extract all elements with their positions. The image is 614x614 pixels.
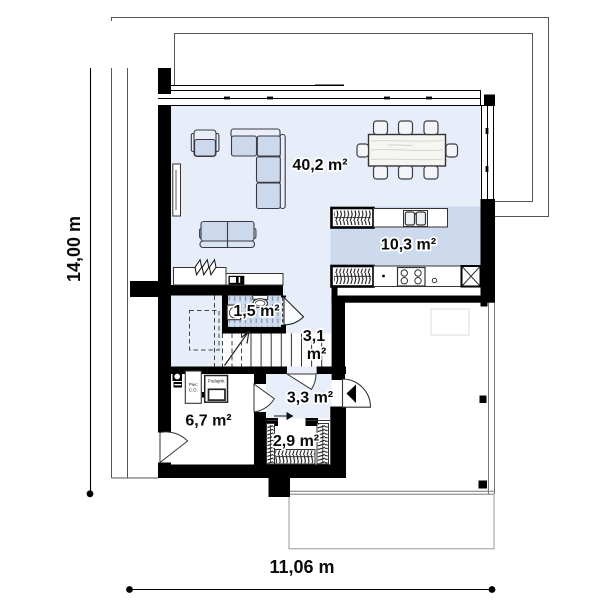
svg-text:10,3 m²: 10,3 m²	[381, 237, 436, 254]
svg-text:3,3 m²: 3,3 m²	[287, 390, 333, 407]
svg-text:6,7 m²: 6,7 m²	[185, 413, 231, 430]
svg-text:m²: m²	[307, 346, 327, 363]
svg-text:2,9 m²: 2,9 m²	[273, 433, 319, 450]
svg-text:40,2 m²: 40,2 m²	[292, 157, 347, 174]
svg-text:14,00 m: 14,00 m	[64, 216, 84, 282]
svg-text:Piec: Piec	[189, 382, 198, 387]
svg-text:11,06 m: 11,06 m	[269, 557, 334, 577]
svg-text:3,1: 3,1	[303, 328, 325, 345]
svg-text:C.O.: C.O.	[189, 388, 198, 393]
svg-text:Podajnik: Podajnik	[208, 379, 226, 384]
svg-text:1,5 m²: 1,5 m²	[233, 303, 279, 320]
